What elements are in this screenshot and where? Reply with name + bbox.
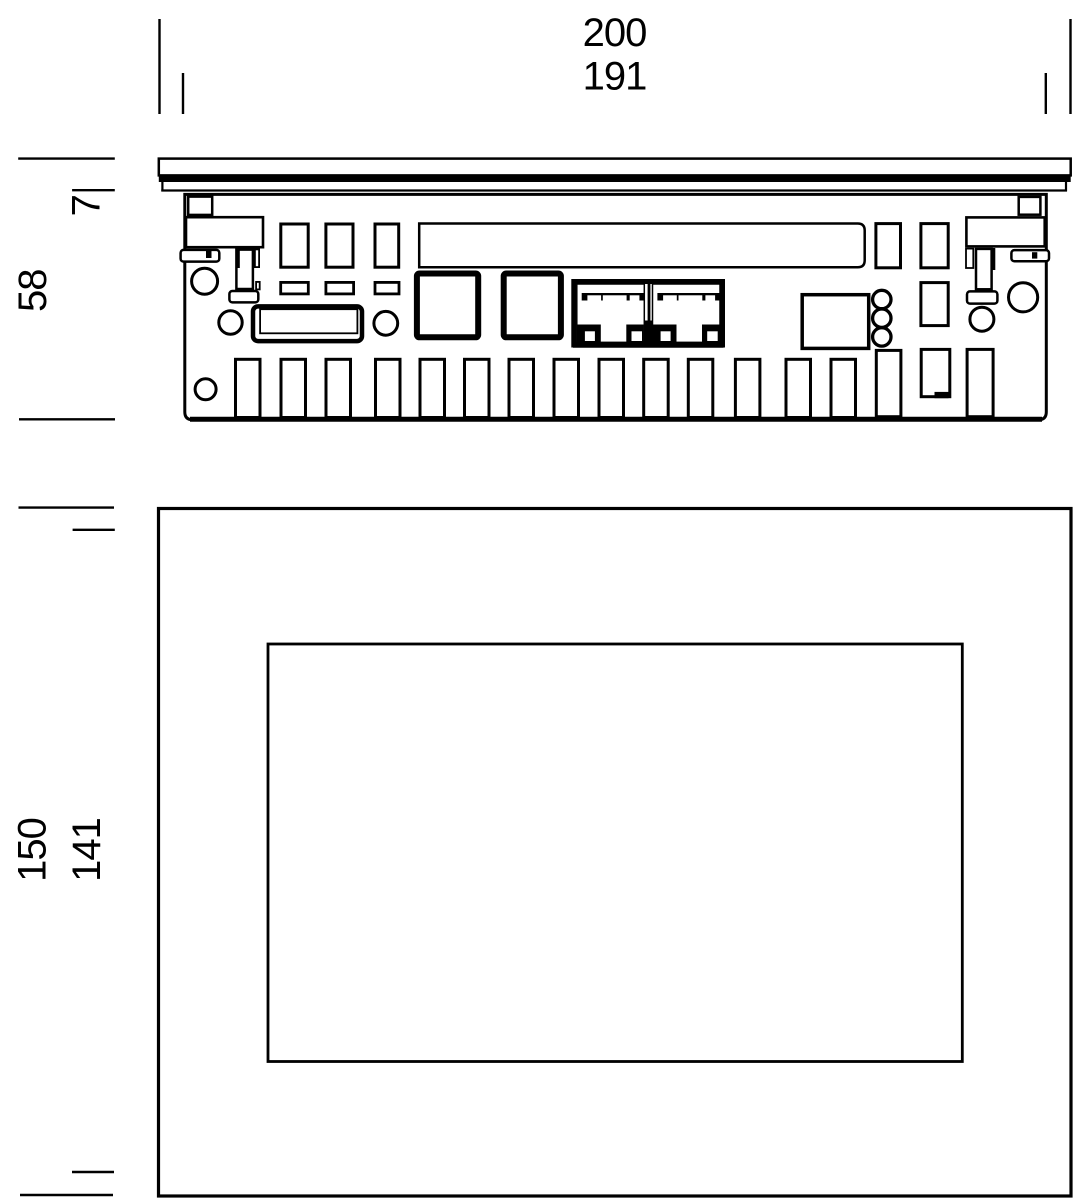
svg-text:141: 141 (65, 818, 109, 882)
svg-text:58: 58 (11, 270, 55, 313)
svg-text:7: 7 (64, 194, 108, 216)
svg-text:200: 200 (583, 11, 647, 55)
svg-text:150: 150 (11, 818, 55, 882)
svg-text:191: 191 (583, 55, 647, 99)
